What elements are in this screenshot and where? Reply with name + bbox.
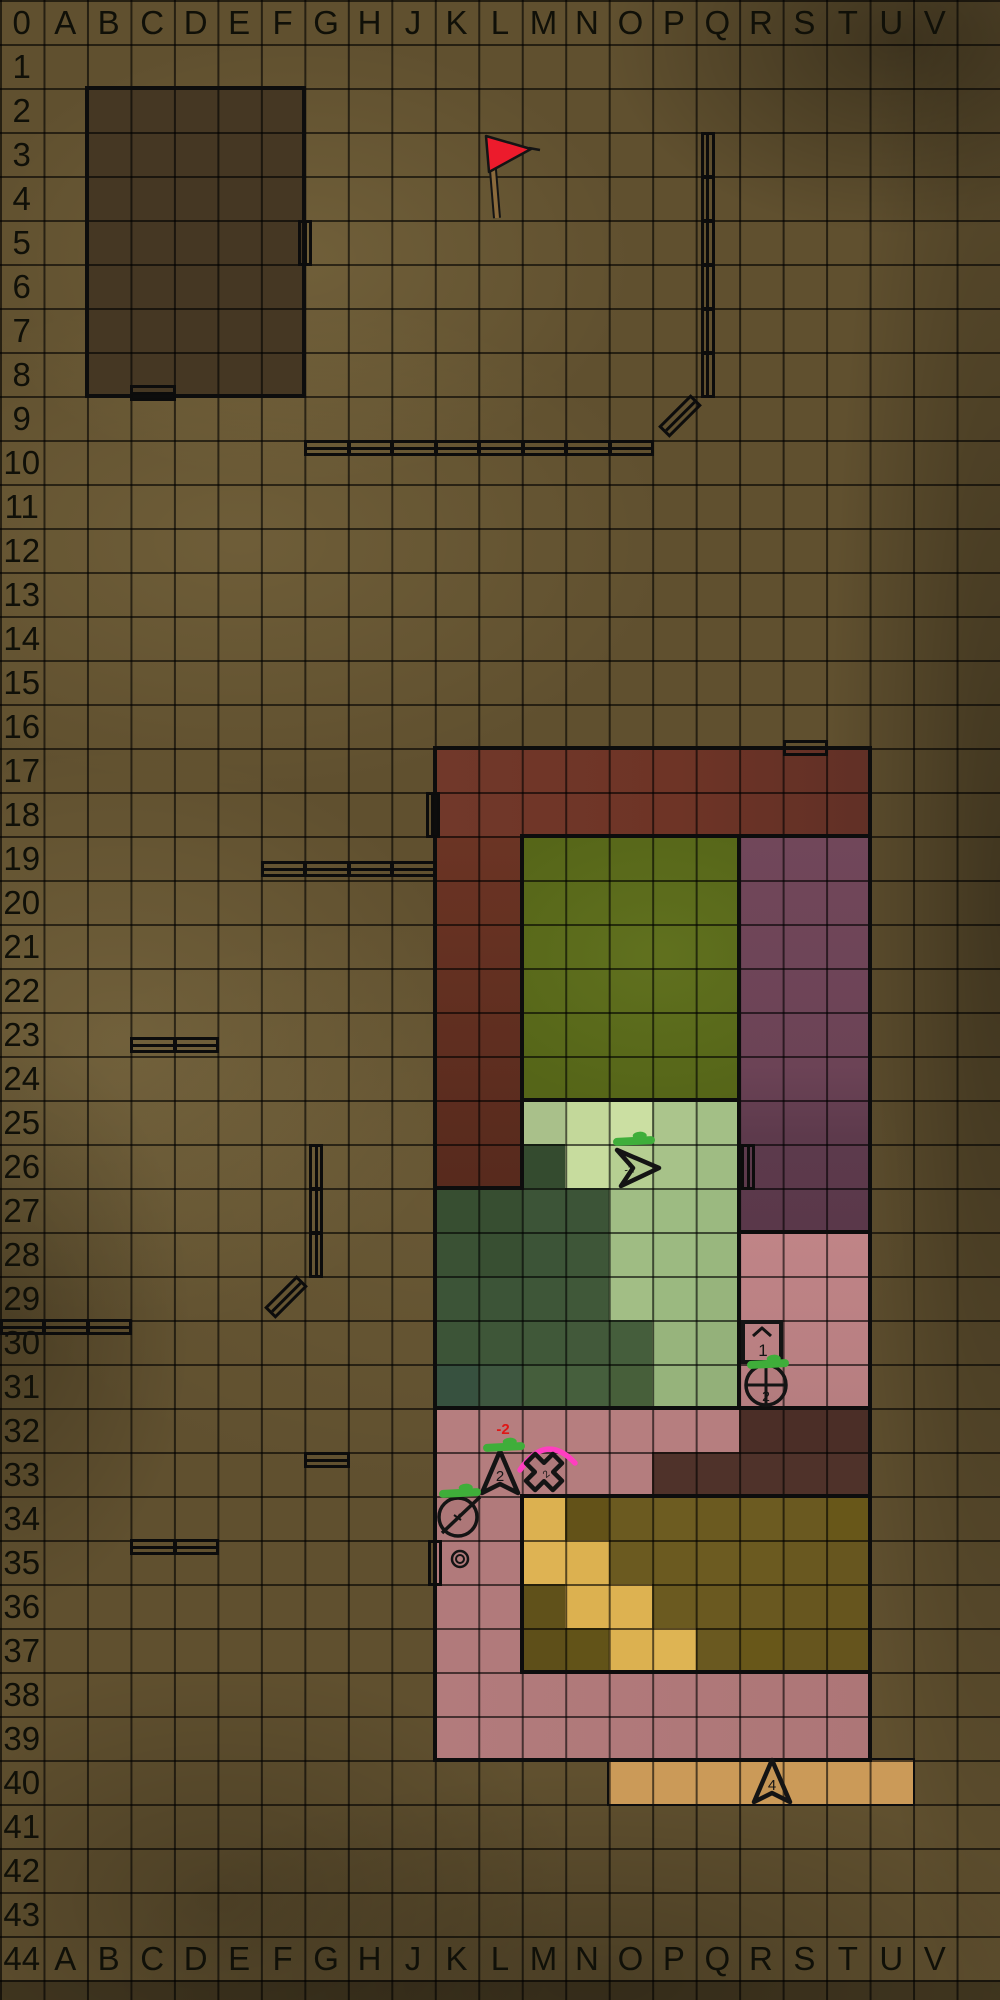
unit-slash-hp-bar	[439, 1483, 482, 1498]
token-label: 2	[762, 1388, 770, 1404]
ring-outer	[452, 1551, 468, 1567]
token-label: -1	[623, 1163, 634, 1176]
token-unit-crosshair-2[interactable]: 2	[746, 1365, 786, 1405]
token-red-flag[interactable]	[486, 136, 540, 218]
token-unit-arrow-1[interactable]: -1	[617, 1150, 659, 1186]
box-caret-icon	[753, 1328, 771, 1336]
damage-text: -2	[492, 1422, 514, 1437]
token-unit-slash[interactable]	[439, 1497, 480, 1536]
token-unit-arrow-2[interactable]: 2	[482, 1451, 518, 1493]
token-loot-ring[interactable]	[452, 1551, 468, 1567]
ring-inner	[456, 1555, 464, 1563]
token-layer: -112224	[0, 0, 1000, 2000]
token-label: 1	[758, 1341, 767, 1360]
unit-arrow-1-hp-bar	[613, 1131, 656, 1146]
token-label: 4	[768, 1777, 776, 1794]
token-unit-x[interactable]: 2	[517, 1445, 575, 1499]
token-unit-arrow-4[interactable]: 4	[754, 1760, 790, 1802]
token-label: 2	[496, 1468, 504, 1485]
flag-pennant	[486, 136, 531, 172]
unit-arrow-2-hp-bar	[483, 1437, 526, 1452]
game-map[interactable]: 0ABCDEFGHJKLMNOPQRSTUV123456789101112131…	[0, 0, 1000, 2000]
